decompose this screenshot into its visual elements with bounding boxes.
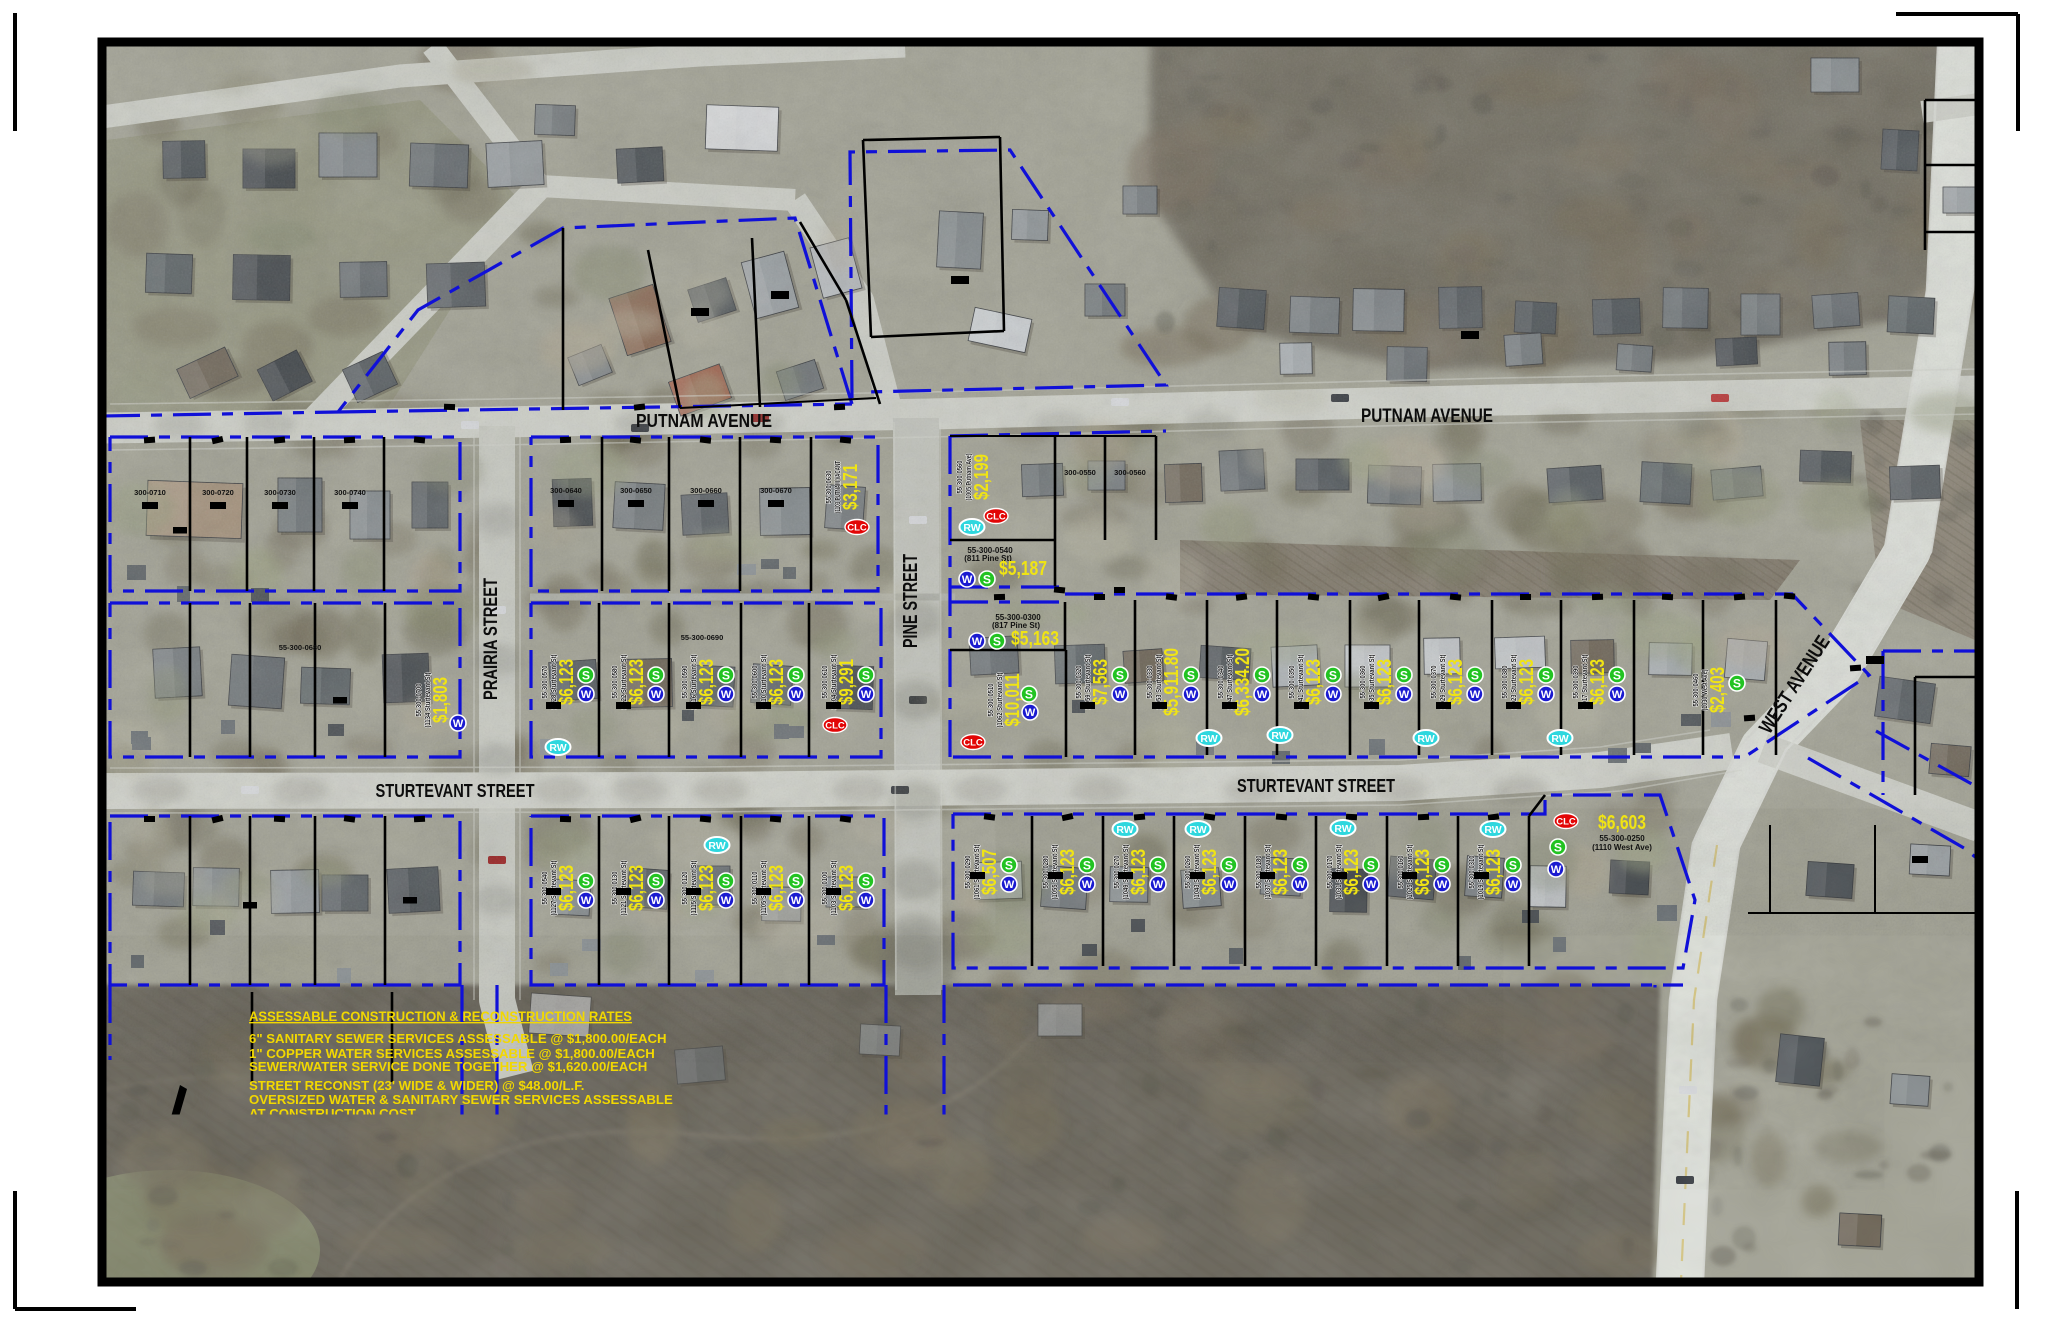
- svg-text:STREET FRONTAGE ASSESSED: STREET FRONTAGE ASSESSED: [286, 1215, 490, 1230]
- svg-text:CONSTRUCT 6" PVC SANITARY SEWE: CONSTRUCT 6" PVC SANITARY SEWER SERVICE: [285, 1153, 599, 1168]
- svg-text:55-300-0560: 55-300-0560: [955, 460, 964, 493]
- svg-text:(COST TO BE ASSESSED BUT NOT I: (COST TO BE ASSESSED BUT NOT INCLUDED IN…: [305, 1251, 838, 1266]
- svg-text:W: W: [1025, 707, 1036, 719]
- svg-text:300-0710: 300-0710: [134, 488, 166, 497]
- svg-text:55-300-0600: 55-300-0600: [750, 665, 759, 698]
- svg-text:RW: RW: [1271, 730, 1288, 742]
- svg-text:S: S: [862, 874, 870, 888]
- svg-text:W: W: [1082, 879, 1093, 891]
- svg-text:RW: RW: [708, 840, 725, 852]
- svg-text:RW: RW: [1484, 824, 1501, 836]
- svg-text:S: S: [582, 668, 590, 682]
- svg-text:S: S: [1296, 858, 1304, 872]
- svg-text:RW: RW: [1200, 733, 1217, 745]
- svg-text:W: W: [721, 895, 732, 907]
- svg-text:(1103 Sturtevant St): (1103 Sturtevant St): [829, 860, 838, 915]
- svg-text:(1025 Sturtevant St): (1025 Sturtevant St): [1405, 844, 1414, 899]
- svg-text:W: W: [1224, 879, 1235, 891]
- svg-text:$2,199: $2,199: [971, 454, 993, 500]
- svg-text:300-0720: 300-0720: [202, 488, 234, 497]
- svg-text:S: S: [1154, 858, 1162, 872]
- svg-text:SET UP-FEE FOR EACH ASSESS: SET UP-FEE FOR EACH ASSESSED PARCEL @$3.…: [249, 1124, 637, 1139]
- svg-text:(1122 Sturtevant St): (1122 Sturtevant St): [619, 654, 628, 709]
- svg-text:S: S: [1083, 858, 1091, 872]
- svg-text:300-0640: 300-0640: [550, 486, 582, 495]
- svg-text:(1055 Sturtevant St): (1055 Sturtevant St): [1050, 844, 1059, 899]
- svg-text:$6,123: $6,123: [766, 659, 788, 705]
- svg-text:$6,123: $6,123: [556, 659, 578, 705]
- svg-text:W: W: [1257, 689, 1268, 701]
- svg-text:S: S: [722, 668, 730, 682]
- svg-text:W: W: [651, 895, 662, 907]
- svg-text:W: W: [962, 574, 973, 586]
- svg-text:$6,123: $6,123: [626, 659, 648, 705]
- svg-text:W: W: [1508, 879, 1519, 891]
- svg-text:CORNER LOT CREDIT APPLIED: CORNER LOT CREDIT APPLIED: [282, 1192, 482, 1207]
- svg-text:(1017 Sturtevant St): (1017 Sturtevant St): [1580, 654, 1589, 709]
- svg-text:S: S: [262, 1153, 270, 1167]
- svg-text:55-300-0250: 55-300-0250: [1599, 834, 1645, 843]
- svg-text:S: S: [1400, 668, 1408, 682]
- svg-text:55-300-0590: 55-300-0590: [680, 665, 689, 698]
- svg-text:300-0740: 300-0740: [334, 488, 366, 497]
- svg-text:RW: RW: [549, 742, 566, 754]
- svg-text:55-300-0280: 55-300-0280: [1041, 855, 1050, 888]
- svg-text:S: S: [1258, 668, 1266, 682]
- svg-text:ASSESSABLE CONSTRUCTION & RECO: ASSESSABLE CONSTRUCTION & RECONSTRUCTION…: [249, 1009, 632, 1024]
- svg-text:W: W: [1328, 689, 1339, 701]
- svg-text:(1104 Sturtevant St): (1104 Sturtevant St): [829, 654, 838, 709]
- svg-text:$10,011: $10,011: [1002, 674, 1024, 727]
- svg-text:W: W: [1437, 879, 1448, 891]
- svg-text:6" SANITARY SEWER SERVICES: 6" SANITARY SEWER SERVICES ASSESSABLE @ …: [249, 1031, 667, 1046]
- svg-text:(1047 Sturtevant St): (1047 Sturtevant St): [1225, 654, 1234, 709]
- svg-text:RW: RW: [1551, 733, 1568, 745]
- svg-text:S: S: [1187, 668, 1195, 682]
- svg-text:S: S: [1471, 668, 1479, 682]
- svg-text:55-300-0350: 55-300-0350: [1287, 665, 1296, 698]
- svg-text:(1043 Sturtevant St): (1043 Sturtevant St): [1192, 844, 1201, 899]
- svg-text:RW: RW: [1189, 824, 1206, 836]
- svg-text:S: S: [1116, 668, 1124, 682]
- svg-text:PUTNAM AVENUE: PUTNAM AVENUE: [636, 410, 772, 431]
- svg-text:55-300-0180: 55-300-0180: [1254, 855, 1263, 888]
- svg-text:300-0660: 300-0660: [690, 486, 722, 495]
- svg-text:S: S: [652, 668, 660, 682]
- svg-text:CLC: CLC: [963, 737, 983, 748]
- svg-text:(1037 Sturtevant St): (1037 Sturtevant St): [1263, 844, 1272, 899]
- svg-text:W: W: [1004, 879, 1015, 891]
- svg-text:W: W: [972, 636, 983, 648]
- svg-text:$6,123: $6,123: [1516, 659, 1538, 705]
- svg-text:RW: RW: [963, 522, 980, 534]
- svg-text:(1019 Sturtevant St): (1019 Sturtevant St): [1476, 844, 1485, 899]
- svg-text:S: S: [652, 874, 660, 888]
- svg-text:$6,603: $6,603: [1598, 812, 1646, 834]
- svg-text:$6,123: $6,123: [696, 659, 718, 705]
- svg-text:W: W: [581, 689, 592, 701]
- svg-text:RW: RW: [1116, 824, 1133, 836]
- svg-text:$6,123: $6,123: [1445, 659, 1467, 705]
- svg-text:55-300-0680: 55-300-0680: [279, 643, 322, 652]
- svg-text:S: S: [1613, 668, 1621, 682]
- svg-text:S: S: [1329, 668, 1337, 682]
- svg-text:(1035 Sturtevant St): (1035 Sturtevant St): [1367, 654, 1376, 709]
- svg-text:SEWER/WATER SERVICE DONE TO: SEWER/WATER SERVICE DONE TOGETHER @ $1,6…: [249, 1059, 647, 1074]
- svg-text:W: W: [721, 689, 732, 701]
- svg-text:$2,403: $2,403: [1707, 667, 1729, 713]
- svg-text:(1105 Sturtevant St): (1105 Sturtevant St): [759, 860, 768, 915]
- svg-text:S: S: [792, 668, 800, 682]
- svg-text:(1103 PUTNAM-VACANT: (1103 PUTNAM-VACANT: [833, 461, 842, 513]
- svg-text:W: W: [861, 895, 872, 907]
- svg-text:CLC: CLC: [1556, 816, 1576, 827]
- svg-text:55-300-0510: 55-300-0510: [986, 683, 995, 716]
- svg-text:55-300-0290: 55-300-0290: [963, 855, 972, 888]
- svg-text:55-300-0100: 55-300-0100: [820, 871, 829, 904]
- svg-text:55-300-0690: 55-300-0690: [681, 633, 724, 642]
- svg-text:55-300-0270: 55-300-0270: [1112, 855, 1121, 888]
- svg-text:55-300-0120: 55-300-0120: [680, 871, 689, 904]
- svg-text:W: W: [791, 895, 802, 907]
- svg-text:(1031 Sturtevant St): (1031 Sturtevant St): [1334, 844, 1343, 899]
- svg-text:RW: RW: [1417, 733, 1434, 745]
- svg-text:55-300-0540: 55-300-0540: [540, 871, 549, 904]
- svg-text:W: W: [581, 895, 592, 907]
- svg-text:CLC: CLC: [847, 522, 867, 533]
- svg-text:$1,803: $1,803: [430, 677, 452, 723]
- svg-text:S: S: [993, 634, 1001, 648]
- svg-text:PINE STREET: PINE STREET: [900, 554, 922, 648]
- svg-text:PUTNAM AVENUE: PUTNAM AVENUE: [1361, 406, 1493, 427]
- svg-text:55-300-0370: 55-300-0370: [1429, 665, 1438, 698]
- svg-text:(1041 Sturtevant St): (1041 Sturtevant St): [1296, 654, 1305, 709]
- svg-text:55-300-0570: 55-300-0570: [540, 665, 549, 698]
- svg-text:(1134 Sturtevant St): (1134 Sturtevant St): [423, 672, 432, 727]
- svg-text:STURTEVANT STREET: STURTEVANT STREET: [376, 780, 536, 801]
- svg-text:W: W: [1115, 689, 1126, 701]
- svg-text:W: W: [1551, 864, 1562, 876]
- svg-text:RW: RW: [257, 1236, 274, 1248]
- svg-text:W: W: [861, 689, 872, 701]
- svg-text:OVERSIZED WATER & SANITARY: OVERSIZED WATER & SANITARY SEWER SERVICE…: [249, 1092, 673, 1107]
- svg-text:55-300-0630: 55-300-0630: [824, 470, 833, 503]
- svg-text:55-300-0360: 55-300-0360: [1358, 665, 1367, 698]
- svg-text:(1059 Sturtevant St): (1059 Sturtevant St): [1083, 654, 1092, 709]
- svg-text:W: W: [1399, 689, 1410, 701]
- svg-text:$9,291: $9,291: [836, 659, 858, 705]
- svg-text:S: S: [1509, 858, 1517, 872]
- svg-text:(1121 Sturtevant St): (1121 Sturtevant St): [619, 860, 628, 915]
- svg-text:W: W: [261, 1175, 272, 1187]
- svg-text:RW: RW: [1334, 823, 1351, 835]
- svg-text:(1061 Sturtevant St): (1061 Sturtevant St): [972, 844, 981, 899]
- svg-text:300-0670: 300-0670: [760, 486, 792, 495]
- svg-text:CLC: CLC: [825, 720, 845, 731]
- svg-text:PRAIRIA STREET: PRAIRIA STREET: [481, 578, 502, 700]
- svg-text:55-300-0170: 55-300-0170: [1325, 855, 1334, 888]
- svg-text:S: S: [1542, 668, 1550, 682]
- svg-text:55-300-0610: 55-300-0610: [820, 665, 829, 698]
- svg-text:W: W: [1295, 879, 1306, 891]
- svg-text:(1115 Sturtevant St): (1115 Sturtevant St): [689, 860, 698, 915]
- svg-text:W: W: [791, 689, 802, 701]
- svg-text:S: S: [1438, 858, 1446, 872]
- svg-text:300-0730: 300-0730: [264, 488, 296, 497]
- svg-text:S: S: [722, 874, 730, 888]
- svg-text:S: S: [792, 874, 800, 888]
- svg-text:$6,123: $6,123: [1303, 659, 1325, 705]
- svg-text:S: S: [1225, 858, 1233, 872]
- svg-text:W: W: [1366, 879, 1377, 891]
- svg-text:55-300-0580: 55-300-0580: [610, 665, 619, 698]
- svg-text:S: S: [582, 874, 590, 888]
- svg-text:55-300-0310: 55-300-0310: [1467, 855, 1476, 888]
- svg-text:55-300-0330: 55-300-0330: [1145, 665, 1154, 698]
- svg-text:(1005 Putnam Ave): (1005 Putnam Ave): [964, 453, 973, 500]
- svg-text:(1023 Sturtevant St): (1023 Sturtevant St): [1509, 654, 1518, 709]
- svg-text:W: W: [1612, 689, 1623, 701]
- svg-text:(1127 Sturtevant St): (1127 Sturtevant St): [549, 860, 558, 915]
- svg-text:$6,123: $6,123: [1374, 659, 1396, 705]
- svg-text:STURTEVANT STREET: STURTEVANT STREET: [1237, 775, 1396, 796]
- svg-text:S: S: [1554, 840, 1562, 854]
- svg-text:W: W: [453, 718, 464, 730]
- svg-text:(1128 Sturtevant St): (1128 Sturtevant St): [549, 654, 558, 709]
- svg-text:(1049 Sturtevant St): (1049 Sturtevant St): [1121, 844, 1130, 899]
- svg-text:(1116 Sturtevant St): (1116 Sturtevant St): [689, 654, 698, 709]
- svg-text:55-300-0380: 55-300-0380: [1500, 665, 1509, 698]
- svg-text:CLC: CLC: [256, 1194, 276, 1205]
- svg-text:CLC: CLC: [986, 511, 1006, 522]
- svg-text:300-0560: 300-0560: [1114, 468, 1146, 477]
- svg-text:55-300-0460: 55-300-0460: [1691, 673, 1700, 706]
- svg-text:(1110 Sturtevant St): (1110 Sturtevant St): [759, 654, 768, 709]
- svg-text:300-0550: 300-0550: [1064, 468, 1096, 477]
- svg-text:(1029 Sturtevant St): (1029 Sturtevant St): [1438, 654, 1447, 709]
- svg-text:W: W: [1186, 689, 1197, 701]
- svg-text:(1062 Sturtevant St): (1062 Sturtevant St): [995, 672, 1004, 727]
- svg-text:55-300-0160: 55-300-0160: [1396, 855, 1405, 888]
- svg-text:S: S: [862, 668, 870, 682]
- svg-text:S: S: [1005, 858, 1013, 872]
- svg-text:$7,563: $7,563: [1090, 659, 1112, 705]
- svg-text:55-300-0390: 55-300-0390: [1571, 665, 1580, 698]
- svg-text:CONSTRUCT 1" WATER SERVICE: CONSTRUCT 1" WATER SERVICE: [285, 1173, 497, 1188]
- svg-text:POTENTIAL RETAINING WALL REPLA: POTENTIAL RETAINING WALL REPLACEMENT: [283, 1234, 578, 1249]
- svg-text:$3,171: $3,171: [840, 464, 862, 510]
- svg-text:(1110 West Ave): (1110 West Ave): [1592, 843, 1652, 852]
- svg-text:55-300-0340: 55-300-0340: [1216, 665, 1225, 698]
- svg-text:W: W: [1541, 689, 1552, 701]
- svg-text:55-300-0320: 55-300-0320: [1074, 665, 1083, 698]
- svg-text:(1030 West Ave): (1030 West Ave): [1700, 669, 1709, 710]
- svg-text:$5,163: $5,163: [1011, 628, 1059, 650]
- svg-text:S: S: [1367, 858, 1375, 872]
- svg-text:55-300-0700: 55-300-0700: [414, 683, 423, 716]
- svg-text:(1053 Sturtevant St): (1053 Sturtevant St): [1154, 654, 1163, 709]
- svg-text:300-0650: 300-0650: [620, 486, 652, 495]
- svg-text:W: W: [1470, 689, 1481, 701]
- svg-text:STREET RECONST (23' WIDE &: STREET RECONST (23' WIDE & WIDER) @ $48.…: [249, 1078, 584, 1093]
- svg-text:W: W: [651, 689, 662, 701]
- svg-text:S: S: [1733, 676, 1741, 690]
- svg-text:S: S: [1025, 687, 1033, 701]
- svg-text:S: S: [983, 572, 991, 586]
- svg-text:$5,187: $5,187: [999, 558, 1047, 580]
- svg-text:$6,123: $6,123: [1587, 659, 1609, 705]
- svg-text:AT CONSTRUCTION COST: AT CONSTRUCTION COST: [249, 1106, 416, 1121]
- svg-text:55-300-0260: 55-300-0260: [1183, 855, 1192, 888]
- svg-text:55-300-0130: 55-300-0130: [610, 871, 619, 904]
- svg-text:W: W: [1153, 879, 1164, 891]
